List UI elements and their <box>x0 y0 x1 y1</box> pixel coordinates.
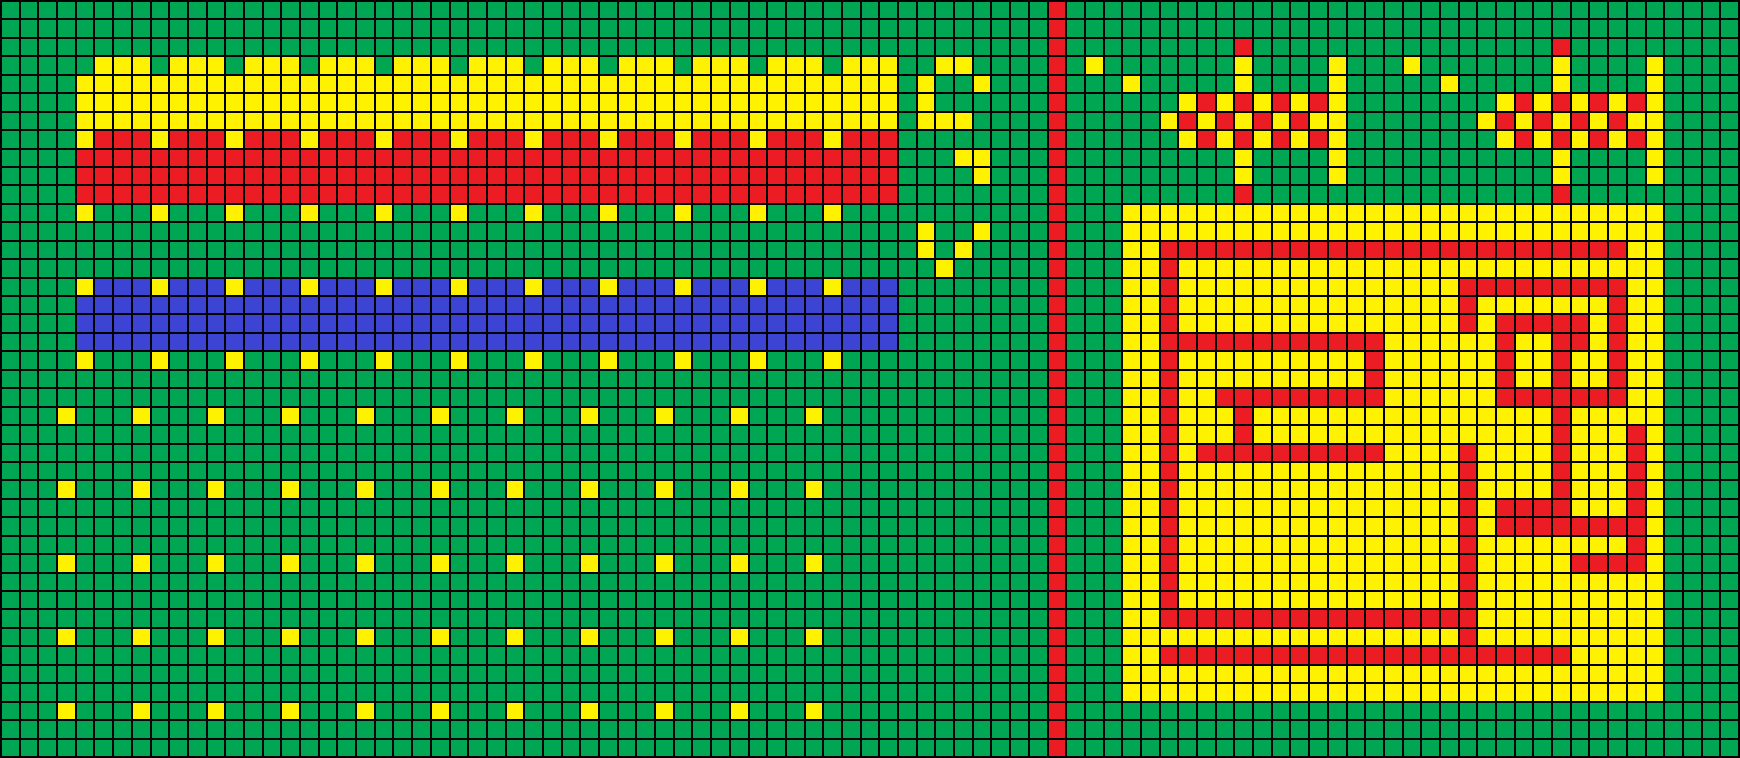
pixel-cell[interactable] <box>114 592 131 608</box>
pixel-cell[interactable] <box>806 555 823 571</box>
pixel-cell[interactable] <box>1553 2 1570 18</box>
pixel-cell[interactable] <box>750 371 767 387</box>
pixel-cell[interactable] <box>1011 297 1028 313</box>
pixel-cell[interactable] <box>1198 371 1215 387</box>
pixel-cell[interactable] <box>992 76 1009 92</box>
pixel-cell[interactable] <box>1572 408 1589 424</box>
pixel-cell[interactable] <box>1553 315 1570 331</box>
pixel-cell[interactable] <box>1329 352 1346 368</box>
pixel-cell[interactable] <box>432 39 449 55</box>
pixel-cell[interactable] <box>656 20 673 36</box>
pixel-cell[interactable] <box>1703 223 1720 239</box>
pixel-cell[interactable] <box>376 740 393 756</box>
pixel-cell[interactable] <box>1534 186 1551 202</box>
pixel-cell[interactable] <box>1273 555 1290 571</box>
pixel-cell[interactable] <box>1291 555 1308 571</box>
pixel-cell[interactable] <box>637 518 654 534</box>
pixel-cell[interactable] <box>189 131 206 147</box>
pixel-cell[interactable] <box>731 76 748 92</box>
pixel-cell[interactable] <box>1142 408 1159 424</box>
pixel-cell[interactable] <box>189 389 206 405</box>
pixel-cell[interactable] <box>936 57 953 73</box>
pixel-cell[interactable] <box>413 703 430 719</box>
pixel-cell[interactable] <box>1590 500 1607 516</box>
pixel-cell[interactable] <box>488 223 505 239</box>
pixel-cell[interactable] <box>376 186 393 202</box>
pixel-cell[interactable] <box>21 740 38 756</box>
pixel-cell[interactable] <box>1329 574 1346 590</box>
pixel-cell[interactable] <box>1049 445 1066 461</box>
pixel-cell[interactable] <box>675 223 692 239</box>
pixel-cell[interactable] <box>189 260 206 276</box>
pixel-cell[interactable] <box>1572 315 1589 331</box>
pixel-cell[interactable] <box>338 223 355 239</box>
pixel-cell[interactable] <box>488 279 505 295</box>
pixel-cell[interactable] <box>1665 740 1682 756</box>
pixel-cell[interactable] <box>1011 408 1028 424</box>
pixel-cell[interactable] <box>1404 20 1421 36</box>
pixel-cell[interactable] <box>824 242 841 258</box>
pixel-cell[interactable] <box>320 389 337 405</box>
pixel-cell[interactable] <box>2 131 19 147</box>
pixel-cell[interactable] <box>955 555 972 571</box>
pixel-cell[interactable] <box>58 260 75 276</box>
pixel-cell[interactable] <box>1609 703 1626 719</box>
pixel-cell[interactable] <box>1404 113 1421 129</box>
pixel-cell[interactable] <box>544 371 561 387</box>
pixel-cell[interactable] <box>21 463 38 479</box>
pixel-cell[interactable] <box>1142 94 1159 110</box>
pixel-cell[interactable] <box>1067 297 1084 313</box>
pixel-cell[interactable] <box>1030 371 1047 387</box>
pixel-cell[interactable] <box>899 186 916 202</box>
pixel-cell[interactable] <box>1516 315 1533 331</box>
pixel-cell[interactable] <box>806 168 823 184</box>
pixel-cell[interactable] <box>1478 131 1495 147</box>
pixel-cell[interactable] <box>282 352 299 368</box>
pixel-cell[interactable] <box>806 113 823 129</box>
pixel-cell[interactable] <box>208 500 225 516</box>
pixel-cell[interactable] <box>731 463 748 479</box>
pixel-cell[interactable] <box>1478 20 1495 36</box>
pixel-cell[interactable] <box>899 39 916 55</box>
pixel-cell[interactable] <box>544 150 561 166</box>
pixel-cell[interactable] <box>843 39 860 55</box>
pixel-cell[interactable] <box>1647 740 1664 756</box>
pixel-cell[interactable] <box>245 223 262 239</box>
pixel-cell[interactable] <box>226 186 243 202</box>
pixel-cell[interactable] <box>301 574 318 590</box>
pixel-cell[interactable] <box>1273 721 1290 737</box>
pixel-cell[interactable] <box>1329 537 1346 553</box>
pixel-cell[interactable] <box>787 315 804 331</box>
pixel-cell[interactable] <box>750 94 767 110</box>
pixel-cell[interactable] <box>1478 113 1495 129</box>
pixel-cell[interactable] <box>432 113 449 129</box>
pixel-cell[interactable] <box>693 2 710 18</box>
pixel-cell[interactable] <box>507 242 524 258</box>
pixel-cell[interactable] <box>114 2 131 18</box>
pixel-cell[interactable] <box>1647 684 1664 700</box>
pixel-cell[interactable] <box>394 555 411 571</box>
pixel-cell[interactable] <box>1011 39 1028 55</box>
pixel-cell[interactable] <box>1665 721 1682 737</box>
pixel-cell[interactable] <box>488 352 505 368</box>
pixel-cell[interactable] <box>58 186 75 202</box>
pixel-cell[interactable] <box>1647 463 1664 479</box>
pixel-cell[interactable] <box>525 315 542 331</box>
pixel-cell[interactable] <box>899 20 916 36</box>
pixel-cell[interactable] <box>1478 555 1495 571</box>
pixel-cell[interactable] <box>1329 740 1346 756</box>
pixel-cell[interactable] <box>1142 740 1159 756</box>
pixel-cell[interactable] <box>1647 629 1664 645</box>
pixel-cell[interactable] <box>1572 352 1589 368</box>
pixel-cell[interactable] <box>862 408 879 424</box>
pixel-cell[interactable] <box>936 205 953 221</box>
pixel-cell[interactable] <box>170 334 187 350</box>
pixel-cell[interactable] <box>1516 76 1533 92</box>
pixel-cell[interactable] <box>1590 150 1607 166</box>
pixel-cell[interactable] <box>1497 408 1514 424</box>
pixel-cell[interactable] <box>1086 463 1103 479</box>
pixel-cell[interactable] <box>320 445 337 461</box>
pixel-cell[interactable] <box>1067 629 1084 645</box>
pixel-cell[interactable] <box>1105 463 1122 479</box>
pixel-cell[interactable] <box>1273 279 1290 295</box>
pixel-cell[interactable] <box>1609 334 1626 350</box>
pixel-cell[interactable] <box>320 94 337 110</box>
pixel-cell[interactable] <box>1105 555 1122 571</box>
pixel-cell[interactable] <box>189 408 206 424</box>
pixel-cell[interactable] <box>1516 555 1533 571</box>
pixel-cell[interactable] <box>637 463 654 479</box>
pixel-cell[interactable] <box>451 389 468 405</box>
pixel-cell[interactable] <box>525 574 542 590</box>
pixel-cell[interactable] <box>1030 334 1047 350</box>
pixel-cell[interactable] <box>1684 629 1701 645</box>
pixel-cell[interactable] <box>1647 371 1664 387</box>
pixel-cell[interactable] <box>320 334 337 350</box>
pixel-cell[interactable] <box>619 186 636 202</box>
pixel-cell[interactable] <box>1254 76 1271 92</box>
pixel-cell[interactable] <box>21 537 38 553</box>
pixel-cell[interactable] <box>918 647 935 663</box>
pixel-cell[interactable] <box>563 371 580 387</box>
pixel-cell[interactable] <box>1310 94 1327 110</box>
pixel-cell[interactable] <box>1497 334 1514 350</box>
pixel-cell[interactable] <box>1516 408 1533 424</box>
pixel-cell[interactable] <box>21 666 38 682</box>
pixel-cell[interactable] <box>21 592 38 608</box>
pixel-cell[interactable] <box>226 76 243 92</box>
pixel-cell[interactable] <box>1534 500 1551 516</box>
pixel-cell[interactable] <box>264 352 281 368</box>
pixel-cell[interactable] <box>992 518 1009 534</box>
pixel-cell[interactable] <box>1516 94 1533 110</box>
pixel-cell[interactable] <box>1553 629 1570 645</box>
pixel-cell[interactable] <box>189 57 206 73</box>
pixel-cell[interactable] <box>1366 426 1383 442</box>
pixel-cell[interactable] <box>21 389 38 405</box>
pixel-cell[interactable] <box>357 481 374 497</box>
pixel-cell[interactable] <box>899 574 916 590</box>
pixel-cell[interactable] <box>750 315 767 331</box>
pixel-cell[interactable] <box>637 537 654 553</box>
pixel-cell[interactable] <box>1516 168 1533 184</box>
pixel-cell[interactable] <box>376 205 393 221</box>
pixel-cell[interactable] <box>1553 740 1570 756</box>
pixel-cell[interactable] <box>563 113 580 129</box>
pixel-cell[interactable] <box>600 260 617 276</box>
pixel-cell[interactable] <box>1217 205 1234 221</box>
pixel-cell[interactable] <box>600 186 617 202</box>
pixel-cell[interactable] <box>1497 186 1514 202</box>
pixel-cell[interactable] <box>955 574 972 590</box>
pixel-cell[interactable] <box>600 242 617 258</box>
pixel-cell[interactable] <box>21 315 38 331</box>
pixel-cell[interactable] <box>936 242 953 258</box>
pixel-cell[interactable] <box>2 537 19 553</box>
pixel-cell[interactable] <box>1179 352 1196 368</box>
pixel-cell[interactable] <box>862 740 879 756</box>
pixel-cell[interactable] <box>1067 223 1084 239</box>
pixel-cell[interactable] <box>843 555 860 571</box>
pixel-cell[interactable] <box>58 2 75 18</box>
pixel-cell[interactable] <box>208 592 225 608</box>
pixel-cell[interactable] <box>731 205 748 221</box>
pixel-cell[interactable] <box>1460 426 1477 442</box>
pixel-cell[interactable] <box>451 666 468 682</box>
pixel-cell[interactable] <box>226 647 243 663</box>
pixel-cell[interactable] <box>862 150 879 166</box>
pixel-cell[interactable] <box>208 242 225 258</box>
pixel-cell[interactable] <box>1067 131 1084 147</box>
pixel-cell[interactable] <box>843 666 860 682</box>
pixel-cell[interactable] <box>1460 371 1477 387</box>
pixel-cell[interactable] <box>114 352 131 368</box>
pixel-cell[interactable] <box>619 223 636 239</box>
pixel-cell[interactable] <box>992 684 1009 700</box>
pixel-cell[interactable] <box>320 592 337 608</box>
pixel-cell[interactable] <box>432 371 449 387</box>
pixel-cell[interactable] <box>1235 481 1252 497</box>
pixel-cell[interactable] <box>133 113 150 129</box>
pixel-cell[interactable] <box>189 592 206 608</box>
pixel-cell[interactable] <box>432 94 449 110</box>
pixel-cell[interactable] <box>1628 113 1645 129</box>
pixel-cell[interactable] <box>806 408 823 424</box>
pixel-cell[interactable] <box>114 334 131 350</box>
pixel-cell[interactable] <box>1703 352 1720 368</box>
pixel-cell[interactable] <box>731 20 748 36</box>
pixel-cell[interactable] <box>77 537 94 553</box>
pixel-cell[interactable] <box>1161 703 1178 719</box>
pixel-cell[interactable] <box>712 666 729 682</box>
pixel-cell[interactable] <box>1628 131 1645 147</box>
pixel-cell[interactable] <box>1684 371 1701 387</box>
pixel-cell[interactable] <box>77 592 94 608</box>
pixel-cell[interactable] <box>1647 537 1664 553</box>
pixel-cell[interactable] <box>1534 518 1551 534</box>
pixel-cell[interactable] <box>563 57 580 73</box>
pixel-cell[interactable] <box>1049 242 1066 258</box>
pixel-cell[interactable] <box>992 150 1009 166</box>
pixel-cell[interactable] <box>880 592 897 608</box>
pixel-cell[interactable] <box>1516 445 1533 461</box>
pixel-cell[interactable] <box>843 242 860 258</box>
pixel-cell[interactable] <box>1647 76 1664 92</box>
pixel-cell[interactable] <box>301 223 318 239</box>
pixel-cell[interactable] <box>1572 113 1589 129</box>
pixel-cell[interactable] <box>1516 537 1533 553</box>
pixel-cell[interactable] <box>880 463 897 479</box>
pixel-cell[interactable] <box>992 445 1009 461</box>
pixel-cell[interactable] <box>133 297 150 313</box>
pixel-cell[interactable] <box>39 647 56 663</box>
pixel-cell[interactable] <box>974 629 991 645</box>
pixel-cell[interactable] <box>525 168 542 184</box>
pixel-cell[interactable] <box>1534 20 1551 36</box>
pixel-cell[interactable] <box>656 205 673 221</box>
pixel-cell[interactable] <box>1348 740 1365 756</box>
pixel-cell[interactable] <box>1422 666 1439 682</box>
pixel-cell[interactable] <box>1590 242 1607 258</box>
pixel-cell[interactable] <box>712 629 729 645</box>
pixel-cell[interactable] <box>1628 334 1645 350</box>
pixel-cell[interactable] <box>936 297 953 313</box>
pixel-cell[interactable] <box>320 647 337 663</box>
pixel-cell[interactable] <box>282 150 299 166</box>
pixel-cell[interactable] <box>488 684 505 700</box>
pixel-cell[interactable] <box>918 574 935 590</box>
pixel-cell[interactable] <box>264 57 281 73</box>
pixel-cell[interactable] <box>320 279 337 295</box>
pixel-cell[interactable] <box>1310 279 1327 295</box>
pixel-cell[interactable] <box>301 389 318 405</box>
pixel-cell[interactable] <box>469 150 486 166</box>
pixel-cell[interactable] <box>1441 610 1458 626</box>
pixel-cell[interactable] <box>1721 20 1738 36</box>
pixel-cell[interactable] <box>955 666 972 682</box>
pixel-cell[interactable] <box>114 150 131 166</box>
pixel-cell[interactable] <box>731 666 748 682</box>
pixel-cell[interactable] <box>1385 279 1402 295</box>
pixel-cell[interactable] <box>338 186 355 202</box>
pixel-cell[interactable] <box>21 76 38 92</box>
pixel-cell[interactable] <box>1572 740 1589 756</box>
pixel-cell[interactable] <box>114 168 131 184</box>
pixel-cell[interactable] <box>1404 168 1421 184</box>
pixel-cell[interactable] <box>1366 500 1383 516</box>
pixel-cell[interactable] <box>1329 242 1346 258</box>
pixel-cell[interactable] <box>301 740 318 756</box>
pixel-cell[interactable] <box>133 20 150 36</box>
pixel-cell[interactable] <box>413 629 430 645</box>
pixel-cell[interactable] <box>1086 186 1103 202</box>
pixel-cell[interactable] <box>731 481 748 497</box>
pixel-cell[interactable] <box>507 684 524 700</box>
pixel-cell[interactable] <box>1478 389 1495 405</box>
pixel-cell[interactable] <box>1553 647 1570 663</box>
pixel-cell[interactable] <box>600 721 617 737</box>
pixel-cell[interactable] <box>2 555 19 571</box>
pixel-cell[interactable] <box>226 94 243 110</box>
pixel-cell[interactable] <box>1404 57 1421 73</box>
pixel-cell[interactable] <box>768 481 785 497</box>
pixel-cell[interactable] <box>170 352 187 368</box>
pixel-cell[interactable] <box>843 150 860 166</box>
pixel-cell[interactable] <box>525 463 542 479</box>
pixel-cell[interactable] <box>955 315 972 331</box>
pixel-cell[interactable] <box>133 186 150 202</box>
pixel-cell[interactable] <box>469 352 486 368</box>
pixel-cell[interactable] <box>1404 518 1421 534</box>
pixel-cell[interactable] <box>1235 518 1252 534</box>
pixel-cell[interactable] <box>1235 260 1252 276</box>
pixel-cell[interactable] <box>432 186 449 202</box>
pixel-cell[interactable] <box>1086 610 1103 626</box>
pixel-cell[interactable] <box>39 500 56 516</box>
pixel-cell[interactable] <box>469 555 486 571</box>
pixel-cell[interactable] <box>693 297 710 313</box>
pixel-cell[interactable] <box>39 168 56 184</box>
pixel-cell[interactable] <box>918 666 935 682</box>
pixel-cell[interactable] <box>376 2 393 18</box>
pixel-cell[interactable] <box>750 684 767 700</box>
pixel-cell[interactable] <box>301 168 318 184</box>
pixel-cell[interactable] <box>133 721 150 737</box>
pixel-cell[interactable] <box>824 223 841 239</box>
pixel-cell[interactable] <box>992 629 1009 645</box>
pixel-cell[interactable] <box>77 500 94 516</box>
pixel-cell[interactable] <box>469 389 486 405</box>
pixel-cell[interactable] <box>1422 20 1439 36</box>
pixel-cell[interactable] <box>95 334 112 350</box>
pixel-cell[interactable] <box>750 426 767 442</box>
pixel-cell[interactable] <box>114 113 131 129</box>
pixel-cell[interactable] <box>394 500 411 516</box>
pixel-cell[interactable] <box>488 260 505 276</box>
pixel-cell[interactable] <box>1348 481 1365 497</box>
pixel-cell[interactable] <box>301 150 318 166</box>
pixel-cell[interactable] <box>1441 94 1458 110</box>
pixel-cell[interactable] <box>1179 740 1196 756</box>
pixel-cell[interactable] <box>1198 647 1215 663</box>
pixel-cell[interactable] <box>1721 2 1738 18</box>
pixel-cell[interactable] <box>432 463 449 479</box>
pixel-cell[interactable] <box>637 684 654 700</box>
pixel-cell[interactable] <box>880 57 897 73</box>
pixel-cell[interactable] <box>152 20 169 36</box>
pixel-cell[interactable] <box>1310 610 1327 626</box>
pixel-cell[interactable] <box>806 76 823 92</box>
pixel-cell[interactable] <box>1198 168 1215 184</box>
pixel-cell[interactable] <box>245 260 262 276</box>
pixel-cell[interactable] <box>824 297 841 313</box>
pixel-cell[interactable] <box>376 113 393 129</box>
pixel-cell[interactable] <box>806 721 823 737</box>
pixel-cell[interactable] <box>1665 39 1682 55</box>
pixel-cell[interactable] <box>1123 703 1140 719</box>
pixel-cell[interactable] <box>1590 463 1607 479</box>
pixel-cell[interactable] <box>95 315 112 331</box>
pixel-cell[interactable] <box>338 371 355 387</box>
pixel-cell[interactable] <box>675 2 692 18</box>
pixel-cell[interactable] <box>1516 481 1533 497</box>
pixel-cell[interactable] <box>1441 500 1458 516</box>
pixel-cell[interactable] <box>1310 445 1327 461</box>
